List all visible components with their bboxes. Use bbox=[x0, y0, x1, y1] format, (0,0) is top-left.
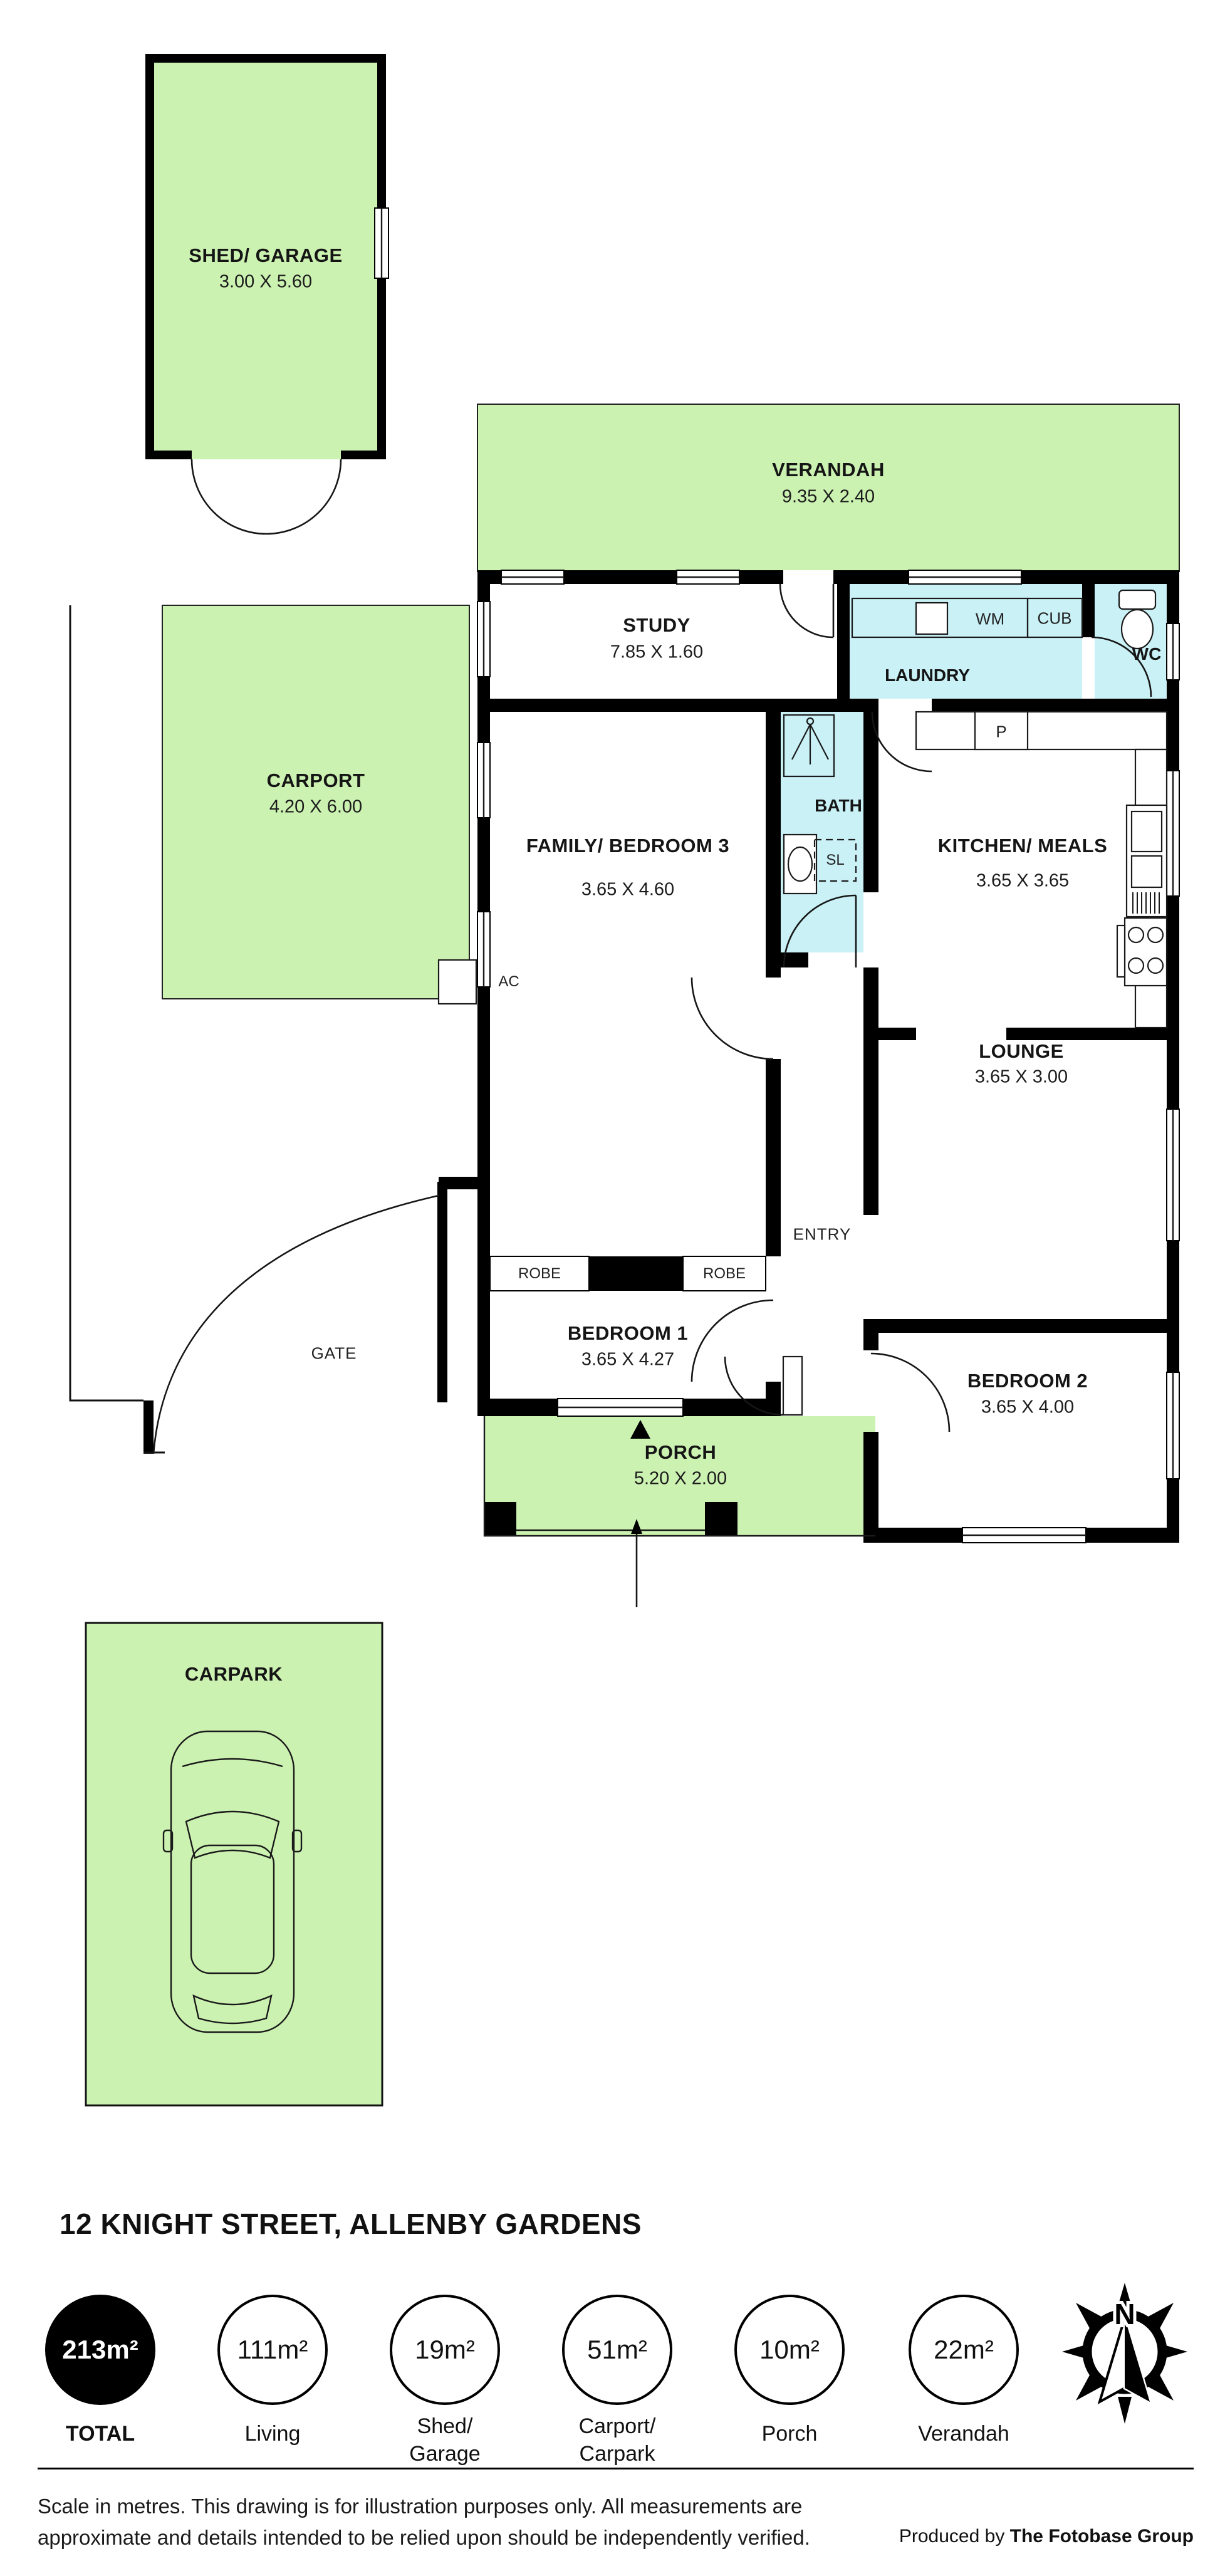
area-label-porch: Porch bbox=[762, 2420, 818, 2448]
sink-icon bbox=[1127, 805, 1167, 917]
shed-dims: 3.00 X 5.60 bbox=[219, 272, 312, 293]
lounge-label: LOUNGE bbox=[979, 1040, 1064, 1063]
wm-label: WM bbox=[976, 610, 1004, 629]
kitchen-dims: 3.65 X 3.65 bbox=[976, 871, 1069, 892]
bedroom1-dims: 3.65 X 4.27 bbox=[581, 1350, 674, 1370]
produced-by-prefix: Produced by bbox=[899, 2526, 1010, 2547]
bath-toilet-icon bbox=[784, 835, 816, 894]
laundry-tub-icon bbox=[916, 603, 947, 634]
carpark-label: CARPARK bbox=[185, 1663, 283, 1686]
verandah-label: VERANDAH bbox=[772, 459, 885, 481]
disclaimer-line1: Scale in metres. This drawing is for ill… bbox=[38, 2495, 802, 2518]
shed-doors bbox=[192, 459, 341, 534]
kitchen-label: KITCHEN/ MEALS bbox=[938, 835, 1108, 857]
wc-label: WC bbox=[1132, 644, 1162, 664]
robe-left-label: ROBE bbox=[518, 1265, 561, 1283]
family-dims: 3.65 X 4.60 bbox=[581, 880, 674, 900]
area-circle-shed: 19m² bbox=[390, 2295, 500, 2405]
gate-swing-arc bbox=[154, 1196, 439, 1454]
compass-icon: N bbox=[1062, 2283, 1187, 2424]
robe-right-label: ROBE bbox=[703, 1265, 746, 1283]
shed-label: SHED/ GARAGE bbox=[189, 244, 342, 267]
sl-label: SL bbox=[826, 852, 844, 869]
carport-dims: 4.20 X 6.00 bbox=[269, 797, 362, 818]
ac-label: AC bbox=[498, 973, 519, 991]
study-dims: 7.85 X 1.60 bbox=[610, 642, 703, 663]
pantry-label: P bbox=[996, 722, 1006, 742]
page-title: 12 KNIGHT STREET, ALLENBY GARDENS bbox=[60, 2207, 642, 2241]
disclaimer-line2: approximate and details intended to be r… bbox=[38, 2526, 810, 2550]
area-label-shed: Shed/ Garage bbox=[409, 2412, 480, 2468]
area-circle-total: 213m² bbox=[45, 2295, 155, 2405]
lounge-dims: 3.65 X 3.00 bbox=[975, 1067, 1068, 1088]
area-label-living: Living bbox=[245, 2420, 301, 2448]
ac-unit-box bbox=[439, 960, 476, 1004]
area-circle-carport: 51m² bbox=[562, 2295, 672, 2405]
bedroom2-dims: 3.65 X 4.00 bbox=[981, 1397, 1074, 1418]
entry-door-leaf bbox=[783, 1357, 802, 1415]
bath-label: BATH bbox=[815, 796, 862, 816]
porch-dims: 5.20 X 2.00 bbox=[634, 1469, 727, 1489]
carport-label: CARPORT bbox=[267, 769, 365, 792]
porch-label: PORCH bbox=[645, 1441, 716, 1464]
produced-by: Produced by The Fotobase Group bbox=[899, 2526, 1194, 2547]
compass-north-letter: N bbox=[1114, 2298, 1135, 2330]
stove-icon bbox=[1117, 918, 1167, 986]
verandah-dims: 9.35 X 2.40 bbox=[782, 487, 875, 508]
footer-divider bbox=[38, 2468, 1194, 2469]
area-circle-living: 111m² bbox=[217, 2295, 328, 2405]
floorplan-page: .g{fill:var(--area-green,#ccf2b2);} .c{f… bbox=[0, 0, 1230, 2576]
area-circle-porch: 10m² bbox=[734, 2295, 845, 2405]
kitchen-fixtures bbox=[916, 712, 1167, 1028]
family-label: FAMILY/ BEDROOM 3 bbox=[526, 835, 729, 857]
bedroom2-label: BEDROOM 2 bbox=[967, 1370, 1088, 1392]
wc-toilet-icon bbox=[1119, 590, 1155, 649]
study-label: STUDY bbox=[623, 614, 691, 637]
area-label-verandah: Verandah bbox=[918, 2420, 1009, 2448]
bedroom1-label: BEDROOM 1 bbox=[568, 1322, 688, 1345]
cub-label: CUB bbox=[1038, 609, 1072, 628]
area-label-total: TOTAL bbox=[66, 2420, 135, 2448]
produced-by-brand: The Fotobase Group bbox=[1010, 2526, 1194, 2547]
entry-label: ENTRY bbox=[793, 1225, 852, 1244]
carpark-area bbox=[86, 1623, 382, 2105]
area-circle-verandah: 22m² bbox=[909, 2295, 1019, 2405]
laundry-label: LAUNDRY bbox=[885, 665, 970, 686]
floorplan-drawing: .g{fill:var(--area-green,#ccf2b2);} .c{f… bbox=[0, 0, 1230, 2576]
area-label-carport: Carport/ Carpark bbox=[579, 2412, 656, 2468]
gate-label: GATE bbox=[311, 1344, 357, 1364]
